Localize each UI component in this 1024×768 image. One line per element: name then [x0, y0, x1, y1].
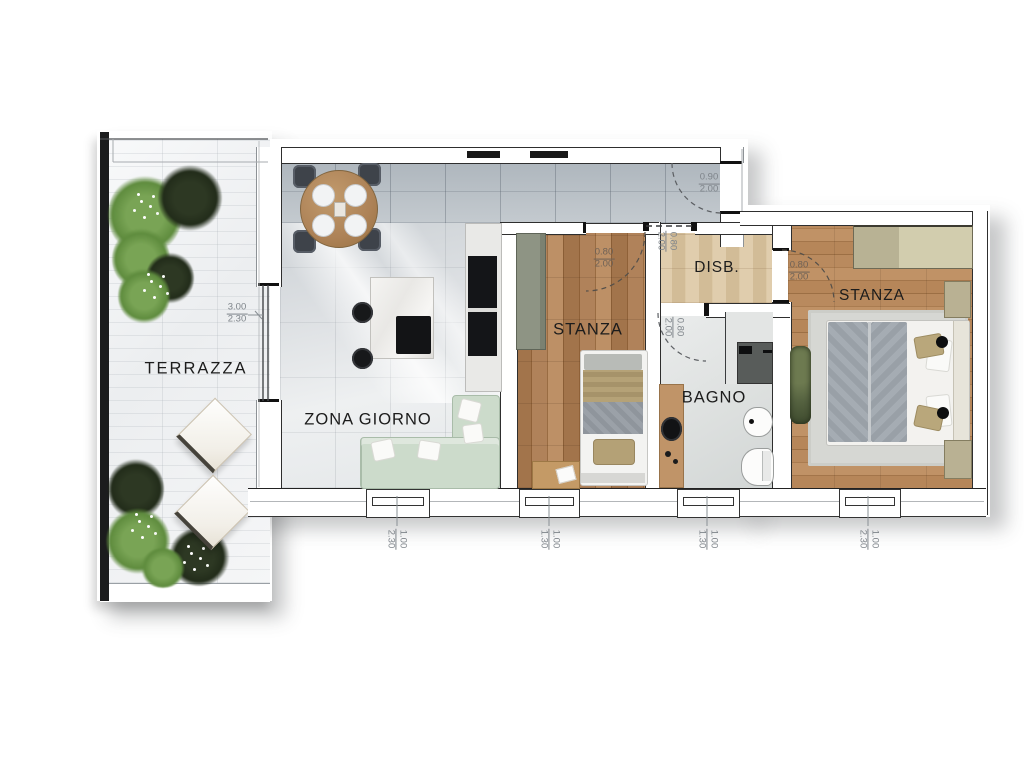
- floor-plan: TERRAZZA: [0, 0, 1024, 768]
- dim-window-stanza-right: 1.00 2.30: [857, 529, 880, 550]
- wall-left-lower: [256, 400, 282, 490]
- bar-stool: [352, 348, 373, 369]
- window-glass: [683, 497, 734, 506]
- plant: [140, 548, 186, 588]
- window-stanza-right: [839, 489, 901, 518]
- oven-column: [468, 256, 497, 356]
- window-stanza-left: [519, 489, 580, 518]
- flowers: [190, 552, 193, 555]
- kitchen-island: [370, 277, 434, 359]
- zona-giorno-label: ZONA GIORNO: [304, 411, 431, 430]
- dim-window-bagno: 1.00 1.30: [696, 529, 719, 550]
- terrazza-label: TERRAZZA: [144, 360, 247, 379]
- duvet-panel: [871, 322, 907, 442]
- window-zona-giorno: [366, 489, 430, 518]
- bed-headboard: [581, 473, 645, 483]
- wall-left-upper: [256, 147, 282, 287]
- cosmetic-dot: [673, 459, 678, 464]
- sofa-pillow: [417, 439, 442, 461]
- passage-jamb: [691, 222, 697, 231]
- dim-window-zona-giorno: 1.00 2.30: [385, 529, 408, 550]
- toilet: [741, 448, 774, 486]
- single-bed: [580, 350, 648, 486]
- reading-lamp: [936, 336, 948, 348]
- wall-bagno-stanza-lower: [772, 302, 792, 490]
- flowers: [140, 200, 143, 203]
- cosmetic-dot: [665, 451, 671, 457]
- bagno-label: BAGNO: [682, 389, 747, 408]
- shower-head: [739, 346, 752, 354]
- bed-blanket-khaki: [583, 370, 643, 402]
- flowers: [150, 280, 153, 283]
- door-jamb: [704, 303, 709, 316]
- door-jamb: [773, 248, 789, 251]
- bar-stool: [352, 302, 373, 323]
- kitchen-cabinet-mark: [530, 151, 568, 158]
- nightstand: [944, 281, 971, 318]
- cooktop: [396, 316, 431, 354]
- bed-blanket-gray: [583, 402, 643, 434]
- dining-table: [300, 170, 378, 248]
- wall-right: [972, 211, 988, 515]
- reading-lamp: [937, 407, 949, 419]
- dim-stanza-right-door: 0.80 2.00: [789, 261, 810, 284]
- bidet: [743, 407, 773, 437]
- dim-stanza-left-door: 0.80 2.00: [594, 248, 615, 271]
- double-bed: [826, 320, 970, 446]
- toilet-tank: [762, 451, 771, 481]
- table-centerpiece: [334, 202, 346, 217]
- dim-bagno-door: 0.80 2.00: [662, 317, 685, 338]
- plant: [158, 165, 222, 231]
- kitchen-tall-unit: [465, 223, 502, 392]
- shower: [725, 312, 773, 384]
- terrace-parapet: [100, 583, 270, 602]
- bed-headboard: [953, 321, 969, 443]
- plant: [118, 268, 170, 324]
- bed-fold: [584, 354, 642, 370]
- bathroom-vanity: [659, 384, 684, 488]
- kitchen-cabinet-mark: [467, 151, 500, 158]
- duvet-gap: [868, 322, 871, 442]
- desk-paper: [555, 465, 576, 484]
- disb-label: DISB.: [694, 259, 739, 277]
- tall-plant: [790, 346, 811, 424]
- bidet-tap: [749, 419, 754, 424]
- stanza-left-label: STANZA: [553, 321, 623, 340]
- window-glass: [372, 497, 424, 506]
- nightstand: [944, 440, 972, 479]
- dim-disb-door: 0.80 2.00: [655, 231, 678, 252]
- window-bagno: [677, 489, 740, 518]
- passage-jamb: [643, 222, 649, 231]
- door-jamb: [258, 283, 279, 286]
- dim-entrance-door: 0.90 2.00: [699, 173, 720, 196]
- wardrobe-right: [853, 225, 973, 269]
- window-glass: [525, 497, 574, 506]
- bed-pillow: [593, 439, 635, 465]
- shower-handle: [763, 350, 772, 353]
- window-glass: [845, 497, 895, 506]
- desk-left: [532, 461, 580, 489]
- stanza-right-label: STANZA: [839, 287, 905, 305]
- door-jamb: [720, 211, 742, 214]
- wardrobe-left: [516, 233, 546, 350]
- dim-terrace-slider: 3.00 2.30: [227, 303, 248, 326]
- flowers: [138, 520, 141, 523]
- dim-window-stanza-left: 1.00 1.30: [538, 529, 561, 550]
- door-jamb: [720, 161, 742, 164]
- door-jamb: [583, 222, 586, 233]
- sink: [661, 417, 682, 441]
- duvet-panel: [828, 322, 868, 442]
- appliance-gap: [468, 308, 497, 312]
- sofa-pillow: [462, 423, 484, 445]
- wall-stanza-right-top: [740, 211, 986, 226]
- door-jamb: [258, 399, 279, 402]
